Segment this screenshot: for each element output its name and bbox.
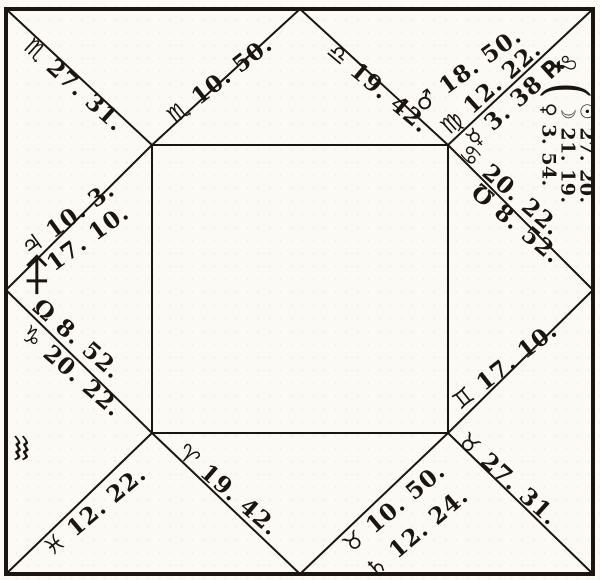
venus-position-label: ♀ 3. 54. bbox=[539, 103, 558, 204]
inner-square bbox=[152, 145, 448, 433]
sun-position-label: ☉ 27. 20. bbox=[577, 103, 596, 204]
leo-stellium-group: ♌ ( ☉ 27. 20. ☽ 21. 19. ♀ 3. 54. bbox=[539, 52, 596, 203]
leo-sign-icon: ♌ bbox=[553, 52, 582, 74]
stellium-planet-lines: ☉ 27. 20. ☽ 21. 19. ♀ 3. 54. bbox=[539, 103, 596, 204]
aquarius-intercepted-icon: ♒ bbox=[0, 433, 40, 463]
moon-position-label: ☽ 21. 19. bbox=[558, 103, 577, 204]
horoscope-square-chart: ♏ 27. 31. ♏ 10. 50. ♎ 19. 42. ♂ 18. 50. … bbox=[0, 0, 600, 580]
